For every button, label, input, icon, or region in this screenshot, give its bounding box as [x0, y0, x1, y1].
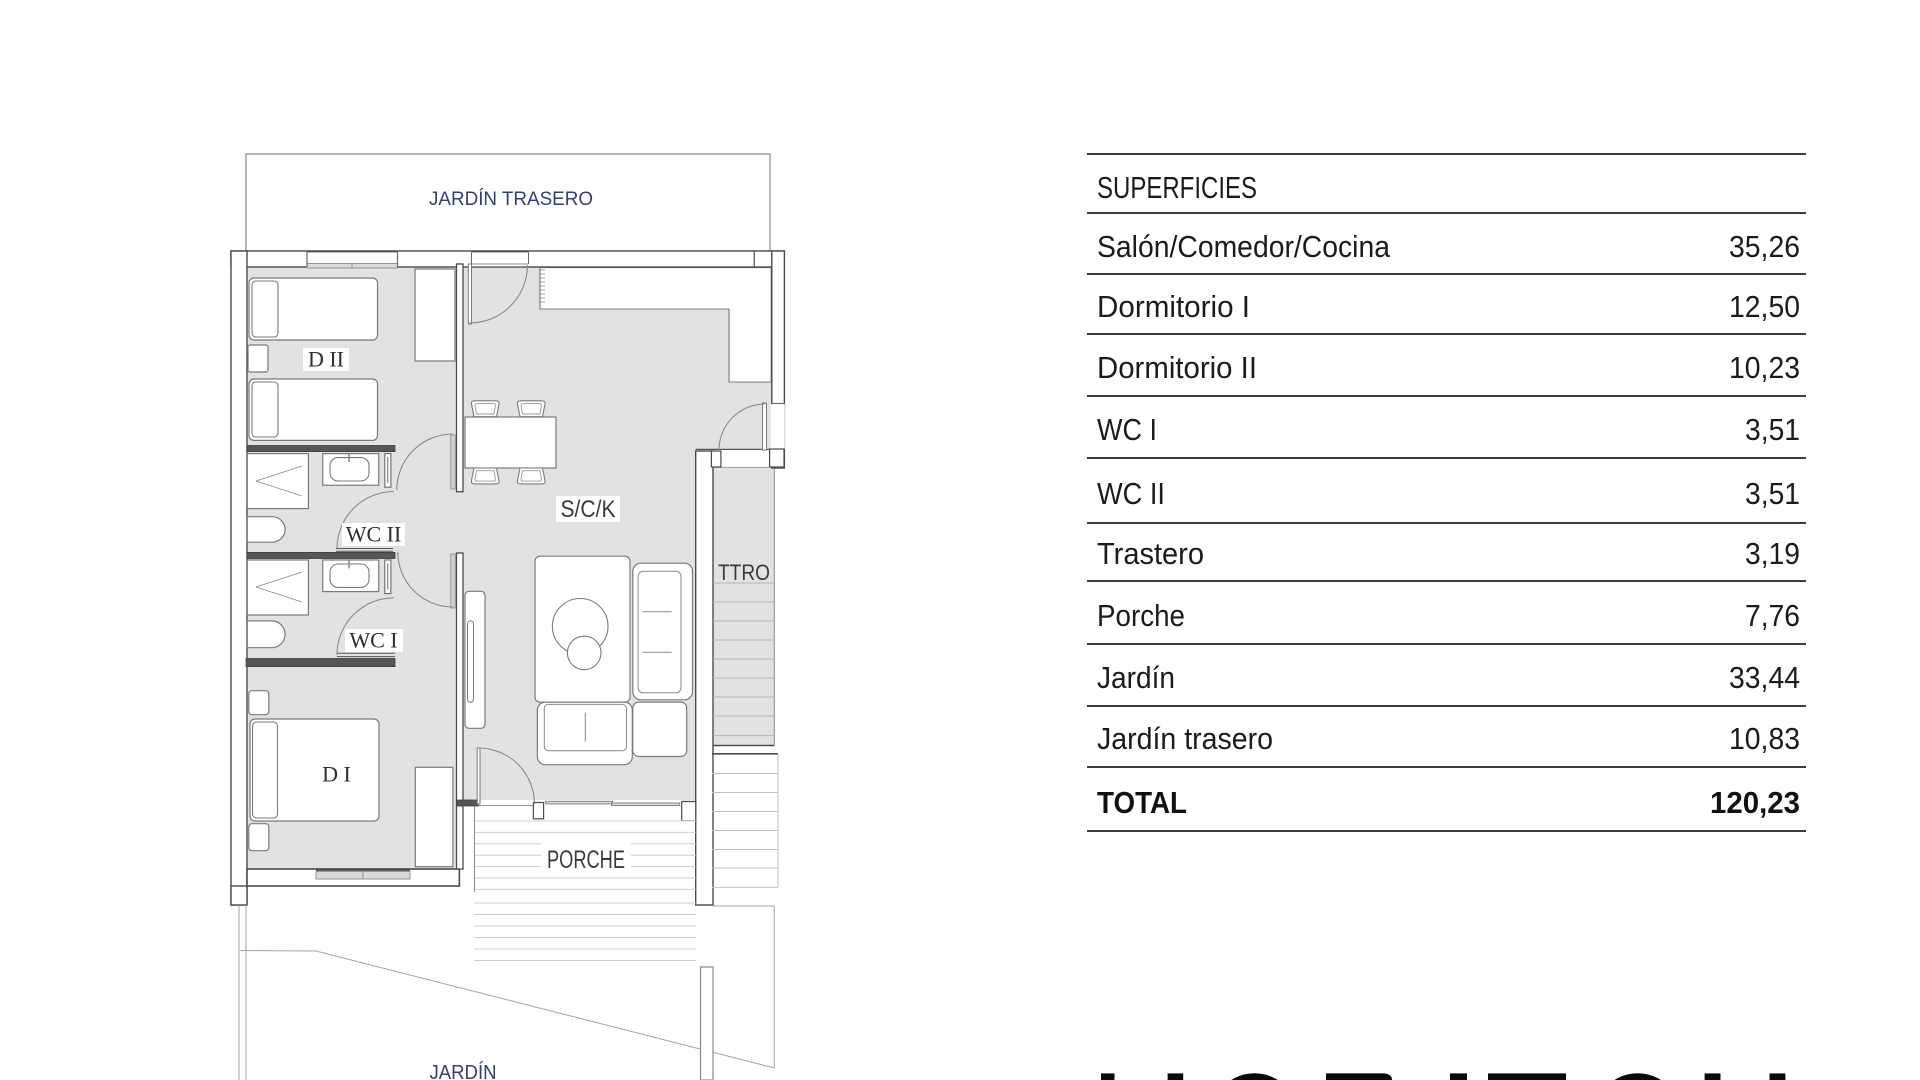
svg-text:Dormitorio II: Dormitorio II [1097, 350, 1257, 385]
svg-text:SUPERFICIES: SUPERFICIES [1097, 170, 1257, 205]
svg-text:3,51: 3,51 [1745, 476, 1800, 511]
svg-text:35,26: 35,26 [1729, 229, 1800, 264]
svg-text:PORCHE: PORCHE [547, 846, 625, 874]
svg-text:WC II: WC II [1097, 476, 1165, 511]
svg-text:120,23: 120,23 [1710, 785, 1800, 820]
svg-text:S/C/K: S/C/K [561, 496, 616, 523]
svg-text:Dormitorio I: Dormitorio I [1097, 289, 1250, 324]
svg-text:WC I: WC I [349, 628, 397, 653]
svg-text:10,83: 10,83 [1729, 721, 1800, 756]
svg-text:3,51: 3,51 [1745, 412, 1800, 447]
svg-text:12,50: 12,50 [1729, 289, 1800, 324]
svg-text:Salón/Comedor/Cocina: Salón/Comedor/Cocina [1097, 229, 1391, 264]
svg-text:JARDÍN: JARDÍN [430, 1061, 497, 1080]
svg-text:WC I: WC I [1097, 412, 1157, 447]
svg-text:TTRO: TTRO [718, 560, 770, 585]
svg-text:D I: D I [322, 762, 351, 787]
svg-text:WC II: WC II [346, 522, 402, 547]
svg-text:10,23: 10,23 [1729, 350, 1800, 385]
svg-text:3,19: 3,19 [1745, 536, 1800, 571]
svg-text:Jardín: Jardín [1097, 660, 1175, 695]
svg-text:33,44: 33,44 [1729, 660, 1800, 695]
svg-text:7,76: 7,76 [1745, 598, 1800, 633]
svg-text:Jardín trasero: Jardín trasero [1097, 721, 1273, 756]
svg-text:Porche: Porche [1097, 598, 1185, 633]
svg-text:JARDÍN TRASERO: JARDÍN TRASERO [429, 189, 593, 210]
svg-text:Trastero: Trastero [1097, 536, 1204, 571]
svg-text:D II: D II [308, 347, 344, 372]
svg-text:TOTAL: TOTAL [1097, 785, 1187, 820]
